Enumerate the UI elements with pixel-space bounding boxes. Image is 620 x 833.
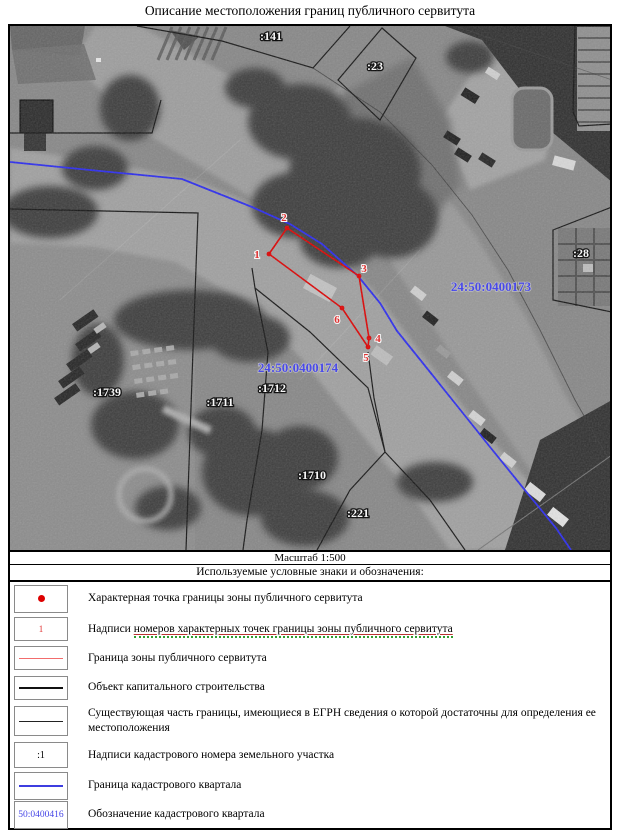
legend-row-cadastral-number: :1 Надписи кадастрового номера земельног…: [10, 740, 610, 770]
legend-row-text: Существующая часть границы, имеющиеся в …: [88, 706, 606, 736]
legend-symbol-red-dot: [14, 585, 68, 613]
legend-header: Используемые условные знаки и обозначени…: [10, 565, 610, 582]
legend-row-quarter-designation: 50:0400416 Обозначение кадастрового квар…: [10, 801, 610, 828]
legend-row-servitude-boundary: Граница зоны публичного сервитута: [10, 643, 610, 673]
legend-row-text: Характерная точка границы зоны публичног…: [88, 591, 369, 606]
quarter-designation-sample: 50:0400416: [18, 810, 63, 820]
legend-row-capital-object: Объект капитального строительства: [10, 673, 610, 702]
red-dot-icon: [38, 595, 45, 602]
black-thin-line-icon: [19, 721, 63, 722]
legend: Характерная точка границы зоны публичног…: [10, 582, 610, 828]
point-number-sample: 1: [39, 624, 44, 634]
legend-symbol-blue-line: [14, 772, 68, 800]
legend-row-text: Граница кадастрового квартала: [88, 778, 247, 793]
map-area: 1 2 3 4 5 6 :141 :23 :28 :1739 :1711 :17…: [10, 26, 610, 550]
legend-symbol-black-thick-line: [14, 676, 68, 700]
legend-symbol-point-number: 1: [14, 617, 68, 641]
legend-row-characteristic-point: Характерная точка границы зоны публичног…: [10, 582, 610, 615]
legend-row-text: Надписи кадастрового номера земельного у…: [88, 748, 340, 763]
cadastral-number-sample: :1: [37, 750, 45, 761]
black-thick-line-icon: [19, 687, 63, 689]
legend-symbol-quarter-designation: 50:0400416: [14, 801, 68, 829]
legend-row-text: Обозначение кадастрового квартала: [88, 807, 271, 822]
legend-symbol-black-thin-line: [14, 706, 68, 736]
legend-row-point-numbers: 1 Надписи номеров характерных точек гран…: [10, 615, 610, 643]
legend-row-text: Граница зоны публичного сервитута: [88, 651, 273, 666]
map-scale-label: Масштаб 1:500: [10, 550, 610, 565]
underlined-text: номеров характерных точек границы зоны п…: [134, 623, 453, 638]
legend-symbol-red-line: [14, 646, 68, 670]
legend-row-quarter-boundary: Граница кадастрового квартала: [10, 770, 610, 801]
page-title: Описание местоположения границ публичног…: [0, 3, 620, 19]
document-frame: 1 2 3 4 5 6 :141 :23 :28 :1739 :1711 :17…: [8, 24, 612, 830]
photo-grain: [10, 26, 610, 550]
red-line-icon: [19, 658, 63, 659]
blue-line-icon: [19, 785, 63, 787]
legend-row-text: Надписи номеров характерных точек границ…: [88, 622, 459, 637]
map-image: 1 2 3 4 5 6 :141 :23 :28 :1739 :1711 :17…: [10, 26, 610, 550]
legend-symbol-cadastral-number: :1: [14, 742, 68, 768]
legend-row-existing-boundary: Существующая часть границы, имеющиеся в …: [10, 702, 610, 740]
legend-row-text: Объект капитального строительства: [88, 680, 271, 695]
